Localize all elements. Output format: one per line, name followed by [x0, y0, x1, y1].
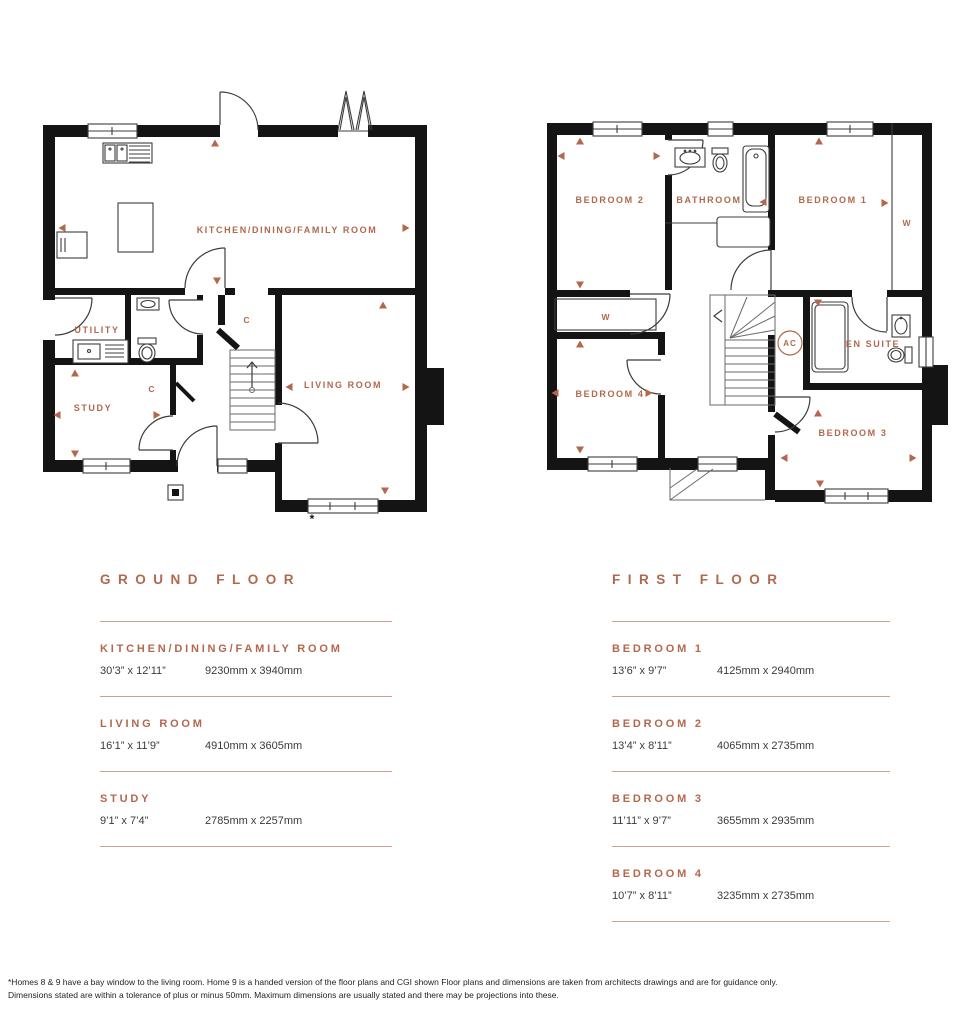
dim-arrow-icon [558, 152, 565, 160]
schedule-title-ground: GROUND FLOOR [100, 572, 392, 622]
dim-arrow-icon [654, 152, 661, 160]
dim-arrow-icon [211, 140, 219, 147]
dim-arrow-icon [379, 302, 387, 309]
ac-unit: AC [778, 331, 802, 355]
schedule-title-first: FIRST FLOOR [612, 572, 890, 622]
airing-cupboard [717, 217, 770, 247]
room-label-bedroom2: BEDROOM 2 [576, 195, 645, 205]
room-dims-metric: 4910mm x 3605mm [205, 740, 302, 752]
room-label-bedroom3: BEDROOM 3 [819, 428, 888, 438]
dim-arrow-icon [381, 488, 389, 495]
kitchen-fixtures [57, 143, 153, 258]
disclaimer-footnote: *Homes 8 & 9 have a bay window to the li… [8, 976, 778, 1002]
window-icon [218, 459, 247, 473]
dim-arrow-icon [403, 224, 410, 232]
appliance-icon [57, 232, 87, 258]
dim-arrow-icon [910, 454, 917, 462]
room-dims-metric: 4125mm x 2940mm [717, 665, 814, 677]
basin-icon [892, 315, 910, 337]
toilet-icon [712, 148, 728, 172]
basin-icon [675, 148, 705, 167]
dim-arrow-icon [576, 282, 584, 289]
door-arc-icon [220, 92, 258, 130]
dim-arrow-icon [154, 411, 161, 419]
ensuite-fixtures [812, 302, 912, 372]
room-name: BEDROOM 1 [612, 643, 890, 655]
toilet-icon [888, 347, 912, 363]
bifold-door-icon [338, 91, 372, 131]
room-label-ensuite: EN SUITE [846, 339, 900, 349]
porch-roof-outline [670, 468, 765, 500]
first-floor-plan: AC BEDROOM 2 BAT [535, 100, 965, 530]
ground-interior-walls [43, 288, 415, 463]
footnote-line1: *Homes 8 & 9 have a bay window to the li… [8, 976, 778, 989]
window-icon [708, 122, 733, 136]
door-arc-icon [169, 300, 203, 334]
room-label-bedroom4: BEDROOM 4 [576, 389, 645, 399]
schedule-row: BEDROOM 1 13’6” x 9’7”4125mm x 2940mm [612, 622, 890, 697]
dim-arrow-icon [815, 138, 823, 145]
staircase [710, 295, 775, 405]
dim-arrow-icon [286, 383, 293, 391]
room-label-bedroom1: BEDROOM 1 [799, 195, 868, 205]
window-icon [83, 459, 130, 473]
door-arc-icon [177, 426, 217, 466]
room-dims-metric: 2785mm x 2257mm [205, 815, 302, 827]
schedule-row: BEDROOM 4 10’7” x 8’11”3235mm x 2735mm [612, 847, 890, 922]
basin-icon [137, 298, 159, 310]
room-dims-imperial: 30’3” x 12’11” [100, 665, 205, 677]
room-dims-metric: 3655mm x 2935mm [717, 815, 814, 827]
room-name: STUDY [100, 793, 392, 805]
room-dims-imperial: 10’7” x 8’11” [612, 890, 717, 902]
ground-dimension-arrows [54, 140, 410, 495]
room-dims-metric: 4065mm x 2735mm [717, 740, 814, 752]
window-icon [593, 122, 642, 136]
staircase [230, 350, 275, 430]
room-name: KITCHEN/DINING/FAMILY ROOM [100, 643, 392, 655]
door-arc-icon [278, 403, 318, 443]
window-icon [698, 457, 737, 471]
door-arc-icon [185, 248, 225, 288]
window-icon [308, 499, 378, 513]
door-arc-icon [852, 297, 887, 332]
dim-arrow-icon [814, 410, 822, 417]
dim-arrow-icon [576, 341, 584, 348]
room-label-living: LIVING ROOM [304, 380, 382, 390]
window-icon [827, 122, 873, 136]
dim-arrow-icon [71, 451, 79, 458]
room-name: BEDROOM 2 [612, 718, 890, 730]
schedule-row: KITCHEN/DINING/FAMILY ROOM 30’3” x 12’11… [100, 622, 392, 697]
kitchen-island [118, 203, 153, 252]
room-dims-imperial: 13’4” x 8’11” [612, 740, 717, 752]
room-dims-imperial: 11’11” x 9’7” [612, 815, 717, 827]
window-icon [588, 457, 637, 471]
dim-arrow-icon [781, 454, 788, 462]
room-dims-metric: 3235mm x 2735mm [717, 890, 814, 902]
schedule-row: LIVING ROOM 16’1” x 11’9”4910mm x 3605mm [100, 697, 392, 772]
dim-arrow-icon [576, 447, 584, 454]
footnote-line2: Dimensions stated are within a tolerance… [8, 989, 778, 1002]
window-icon [88, 124, 137, 138]
ground-floor-schedule: GROUND FLOOR KITCHEN/DINING/FAMILY ROOM … [100, 572, 392, 847]
dim-arrow-icon [816, 481, 824, 488]
room-dims-imperial: 13’6” x 9’7” [612, 665, 717, 677]
ground-floor-plan: * KITCHEN/DINING/FAMILY ROOM UTILITY STU… [35, 85, 465, 525]
wardrobe-label: W [601, 312, 610, 322]
dim-arrow-icon [646, 389, 653, 397]
ac-label: AC [783, 339, 797, 348]
room-name: BEDROOM 4 [612, 868, 890, 880]
room-dims-imperial: 16’1” x 11’9” [100, 740, 205, 752]
door-arc-icon [630, 294, 670, 334]
schedule-row: BEDROOM 3 11’11” x 9’7”3655mm x 2935mm [612, 772, 890, 847]
room-dims-metric: 9230mm x 3940mm [205, 665, 302, 677]
room-label-kitchen: KITCHEN/DINING/FAMILY ROOM [197, 225, 378, 235]
porch-post-icon [168, 485, 183, 500]
shower-icon [812, 302, 848, 372]
stairs-down-arrow-icon [714, 310, 722, 322]
room-name: LIVING ROOM [100, 718, 392, 730]
toilet-icon [138, 338, 156, 362]
room-name: BEDROOM 3 [612, 793, 890, 805]
utility-sink-icon [73, 340, 128, 363]
dim-arrow-icon [882, 199, 889, 207]
first-interior-walls [547, 123, 932, 458]
first-floor-schedule: FIRST FLOOR BEDROOM 1 13’6” x 9’7”4125mm… [612, 572, 890, 922]
room-label-study: STUDY [74, 403, 113, 413]
stairs-up-arrow-icon [247, 362, 257, 393]
room-dims-imperial: 9’1” x 7’4” [100, 815, 205, 827]
cupboard-label: C [148, 384, 155, 394]
schedule-row: STUDY 9’1” x 7’4”2785mm x 2257mm [100, 772, 392, 847]
dim-arrow-icon [576, 138, 584, 145]
dim-arrow-icon [71, 370, 79, 377]
bay-window-asterisk: * [310, 512, 315, 525]
dim-arrow-icon [59, 224, 66, 232]
window-icon [825, 489, 888, 503]
door-arc-icon [139, 416, 173, 450]
room-label-bathroom: BATHROOM [676, 195, 741, 205]
window-icon [919, 337, 933, 367]
room-label-utility: UTILITY [74, 325, 119, 335]
dim-arrow-icon [213, 278, 221, 285]
dim-arrow-icon [403, 383, 410, 391]
floorplan-page: * KITCHEN/DINING/FAMILY ROOM UTILITY STU… [0, 0, 972, 1024]
cupboard-label: C [243, 315, 250, 325]
door-arc-icon [731, 250, 771, 290]
wardrobe-label: W [902, 218, 911, 228]
schedule-row: BEDROOM 2 13’4” x 8’11”4065mm x 2735mm [612, 697, 890, 772]
